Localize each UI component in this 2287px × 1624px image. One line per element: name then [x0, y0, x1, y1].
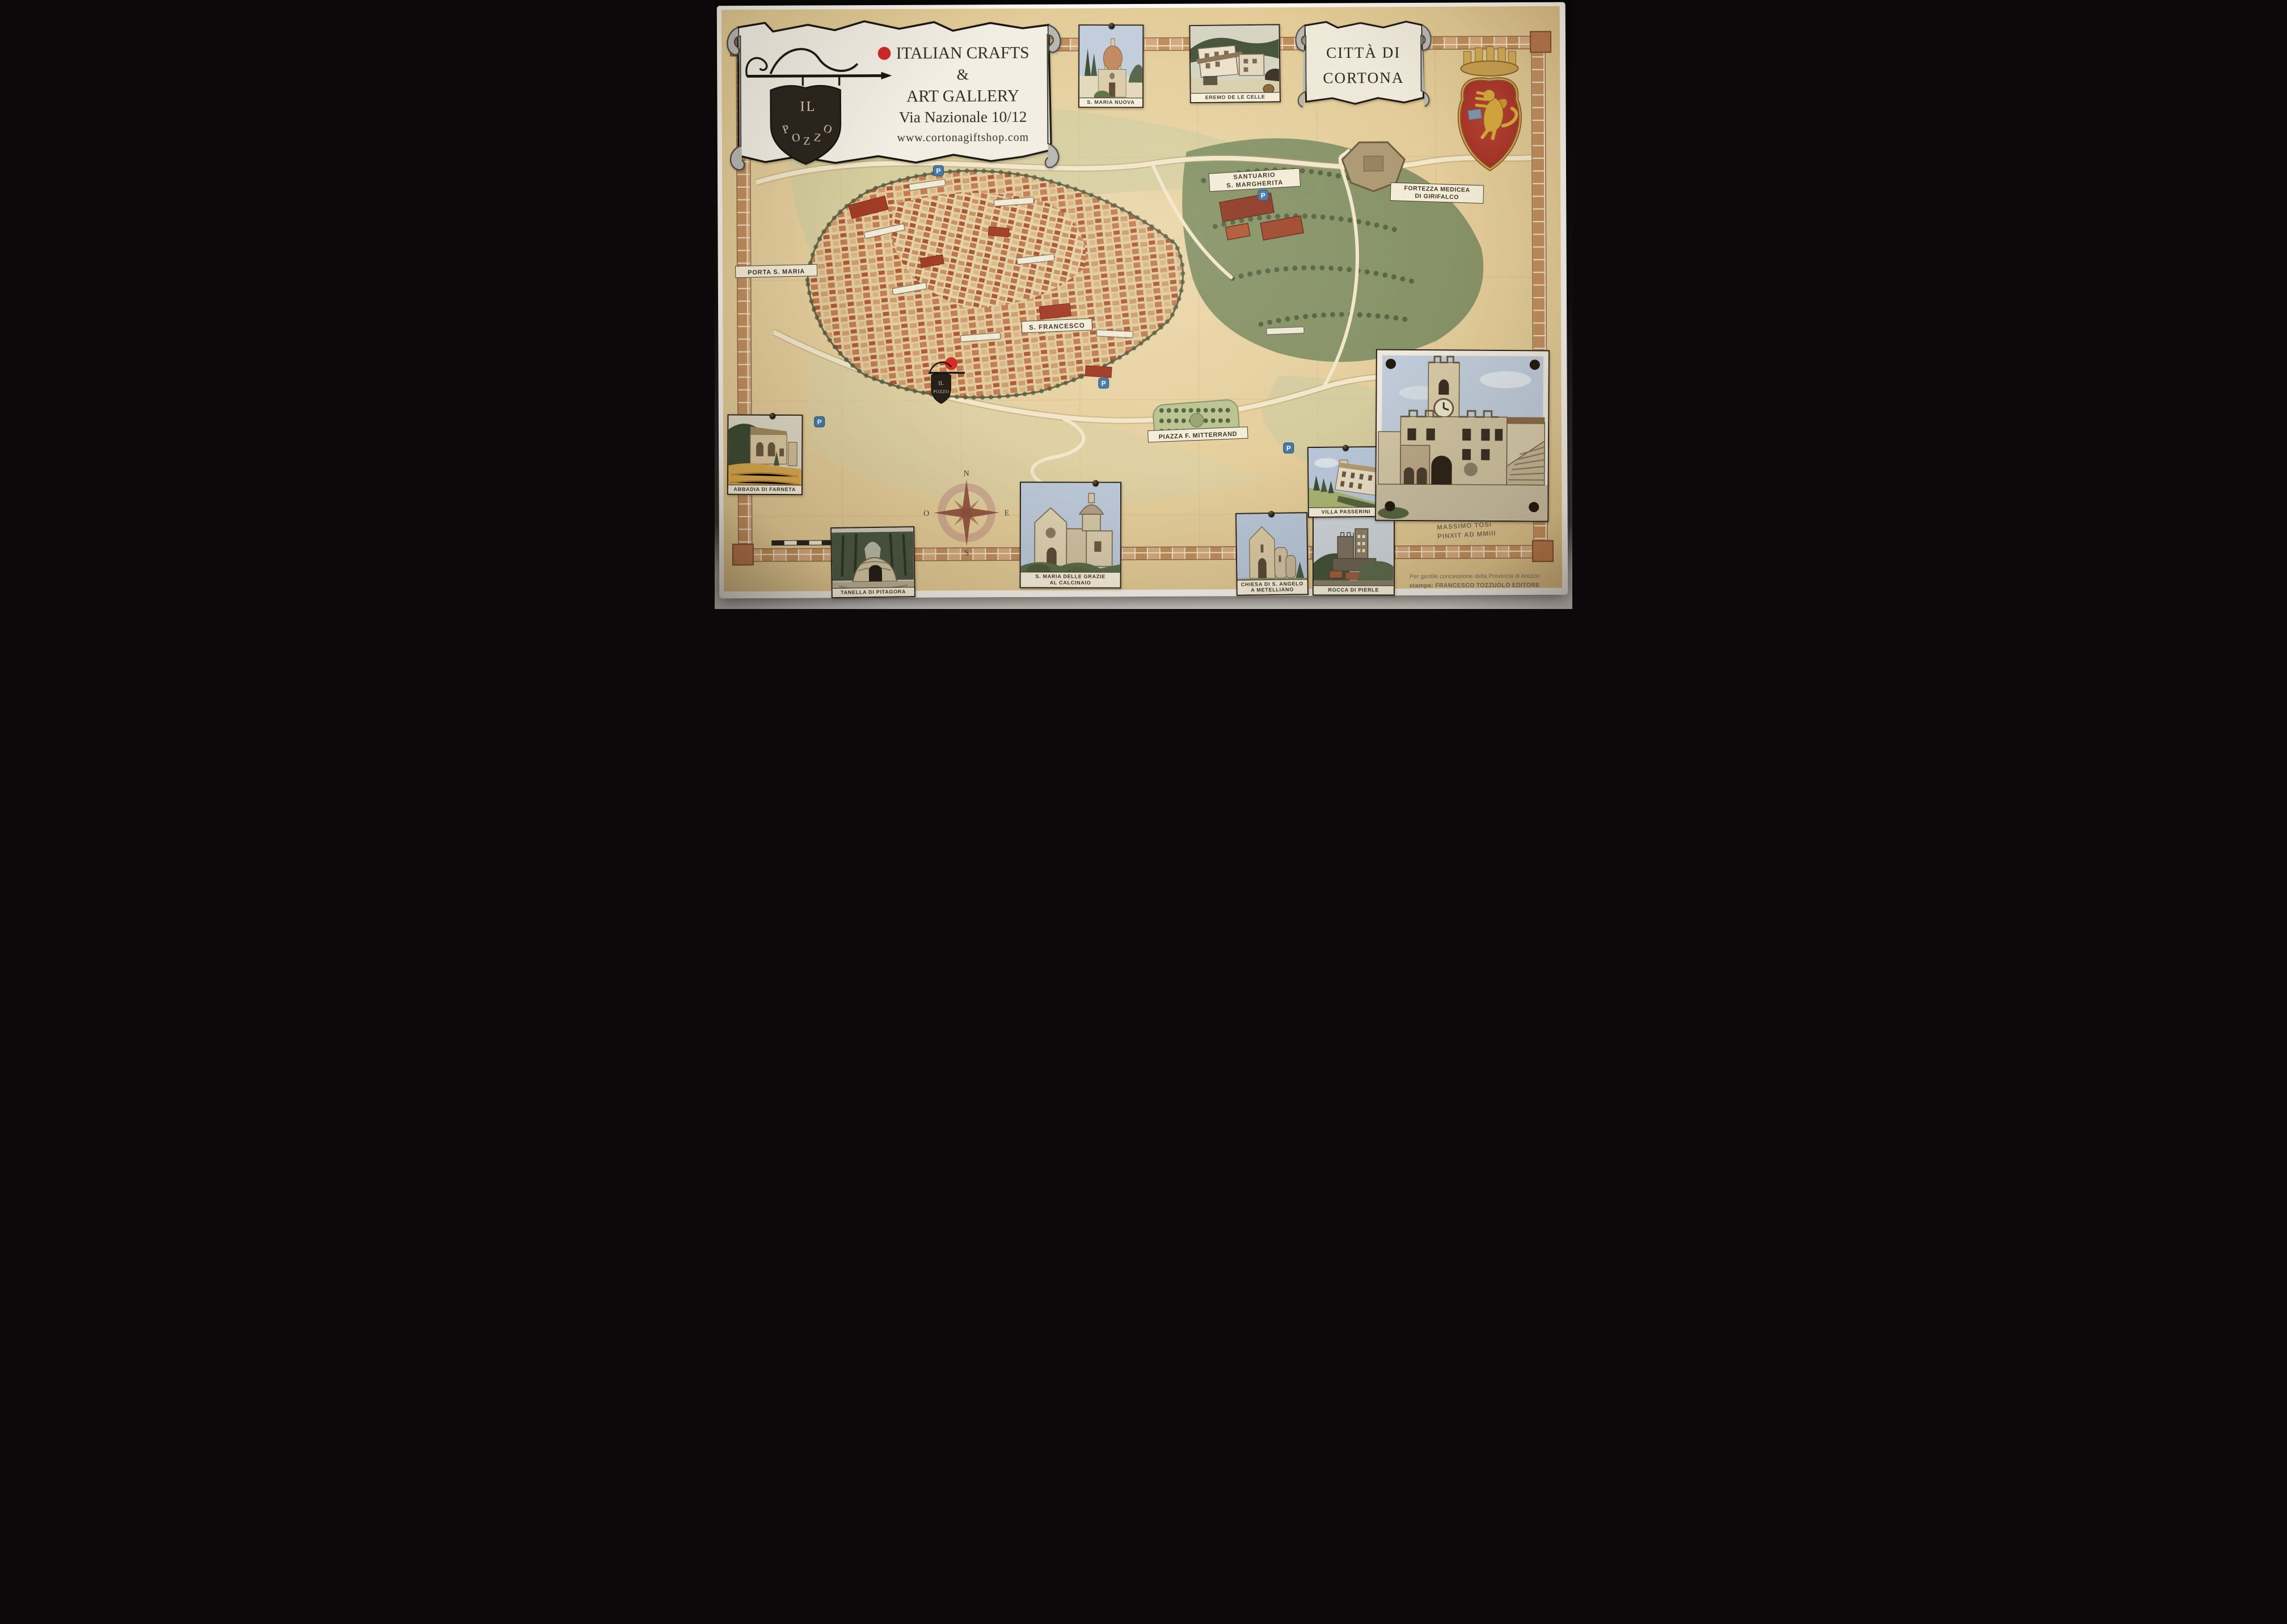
scroll-parchment: [1305, 22, 1424, 104]
vignette-abbadia-di-farneta: ABBADIA DI FARNETA: [727, 415, 803, 496]
red-dot-icon: [878, 46, 891, 60]
palazzo-comunale-illustration: [1376, 350, 1548, 521]
svg-text:www.cortonagiftshop.com: www.cortonagiftshop.com: [897, 131, 1029, 144]
vignette-s-angelo-metelliano: CHIESA DI S. ANGELO A METELLIANO: [1235, 512, 1309, 596]
vignette-caption: A METELLIANO: [1238, 586, 1307, 593]
svg-text:CITTÀ DI: CITTÀ DI: [1326, 44, 1400, 61]
svg-text:ITALIAN CRAFTS: ITALIAN CRAFTS: [896, 44, 1029, 62]
svg-text:S: S: [964, 548, 969, 557]
cortona-coat-of-arms: [1449, 43, 1531, 181]
svg-text:O: O: [923, 509, 929, 518]
svg-text:CORTONA: CORTONA: [1323, 69, 1404, 87]
svg-text:N: N: [964, 469, 969, 478]
pin-icon: [1343, 445, 1349, 451]
svg-text:IL: IL: [800, 99, 816, 114]
vignette-caption: TANELLA DI PITAGORA: [833, 589, 914, 596]
map-sheet: SANTUARIO S. MARGHERITA FORTEZZA MEDICEA…: [717, 2, 1568, 599]
credit-line: Per gentile concessione della Provincia …: [1390, 572, 1559, 582]
scroll-curl-left: [1296, 26, 1307, 107]
vignette-caption: AL CALCINAIO: [1021, 580, 1119, 586]
vignette-calcinaio: S. MARIA DELLE GRAZIE AL CALCINAIO: [1019, 482, 1121, 589]
eremo-illustration: [1191, 25, 1280, 102]
rocca-illustration: [1314, 516, 1394, 594]
vignette-caption: ABBADIA DI FARNETA: [729, 487, 801, 493]
vignette-eremo-le-celle: EREMO DE LE CELLE: [1189, 24, 1281, 103]
vignette-caption: S. MARIA DELLE GRAZIE: [1021, 574, 1119, 580]
vignette-caption: ROCCA DI PIERLE: [1314, 587, 1393, 593]
title-scroll: CITTÀ DI CORTONA: [1292, 17, 1435, 108]
vignette-caption: CHIESA DI S. ANGELO: [1238, 580, 1307, 587]
svg-text:Z: Z: [803, 134, 810, 147]
pin-icon: [1109, 23, 1115, 29]
pin-icon: [1092, 480, 1099, 487]
vignette-s-maria-nuova: S. MARIA NUOVA: [1078, 24, 1143, 108]
label-s-francesco: S. FRANCESCO: [1022, 319, 1092, 333]
svg-text:P: P: [817, 418, 822, 426]
crest-blue-charge: [1467, 109, 1481, 120]
vignette-rocca-di-pierle: ROCCA DI PIERLE: [1313, 515, 1395, 595]
svg-text:POZZO: POZZO: [933, 389, 949, 394]
parking-icon: P: [815, 417, 825, 427]
svg-text:Via Nazionale 10/12: Via Nazionale 10/12: [899, 107, 1027, 125]
shop-banner: IL P O Z Z O ITALIAN CRAFTS & ART GALLER…: [722, 14, 1066, 174]
abbadia-illustration: [728, 416, 801, 494]
svg-text:P: P: [1261, 192, 1265, 200]
crown-icon: [1461, 46, 1518, 76]
vignette-caption: EREMO DE LE CELLE: [1192, 94, 1279, 101]
vignette-tanella-di-pitagora: TANELLA DI PITAGORA: [831, 526, 915, 598]
label-porta-s-maria: PORTA S. MARIA: [736, 264, 817, 277]
vignette-caption: S. MARIA NUOVA: [1080, 99, 1142, 105]
parking-icon: P: [1284, 443, 1294, 453]
svg-text:&: &: [957, 65, 969, 83]
photo-of-cortona-map: SANTUARIO S. MARGHERITA FORTEZZA MEDICEA…: [715, 0, 1572, 609]
svg-text:ART GALLERY: ART GALLERY: [906, 87, 1019, 105]
svg-text:DI GIRIFALCO: DI GIRIFALCO: [1415, 193, 1459, 201]
printer-credits: Per gentile concessione della Provincia …: [1390, 572, 1559, 591]
svg-text:P: P: [1102, 379, 1106, 387]
vignette-palazzo-comunale: [1375, 349, 1550, 522]
s-maria-nuova-illustration: [1079, 26, 1142, 107]
villa-passerini-illustration: [1309, 447, 1383, 516]
svg-text:IL: IL: [938, 380, 943, 387]
label-fortezza: FORTEZZA MEDICEA DI GIRIFALCO: [1390, 183, 1484, 204]
svg-text:P: P: [1286, 444, 1291, 452]
vignette-villa-passerini: VILLA PASSERINI: [1307, 446, 1384, 518]
svg-text:PORTA S. MARIA: PORTA S. MARIA: [748, 268, 805, 276]
credit-line: stampa: FRANCESCO TOZZUOLO EDITORE: [1390, 581, 1559, 591]
svg-text:E: E: [1005, 509, 1010, 518]
tanella-illustration: [832, 527, 914, 597]
parking-icon: P: [1099, 378, 1109, 388]
parking-icon: P: [1258, 190, 1268, 200]
pin-icon: [769, 413, 775, 419]
vignette-caption: VILLA PASSERINI: [1310, 509, 1382, 515]
